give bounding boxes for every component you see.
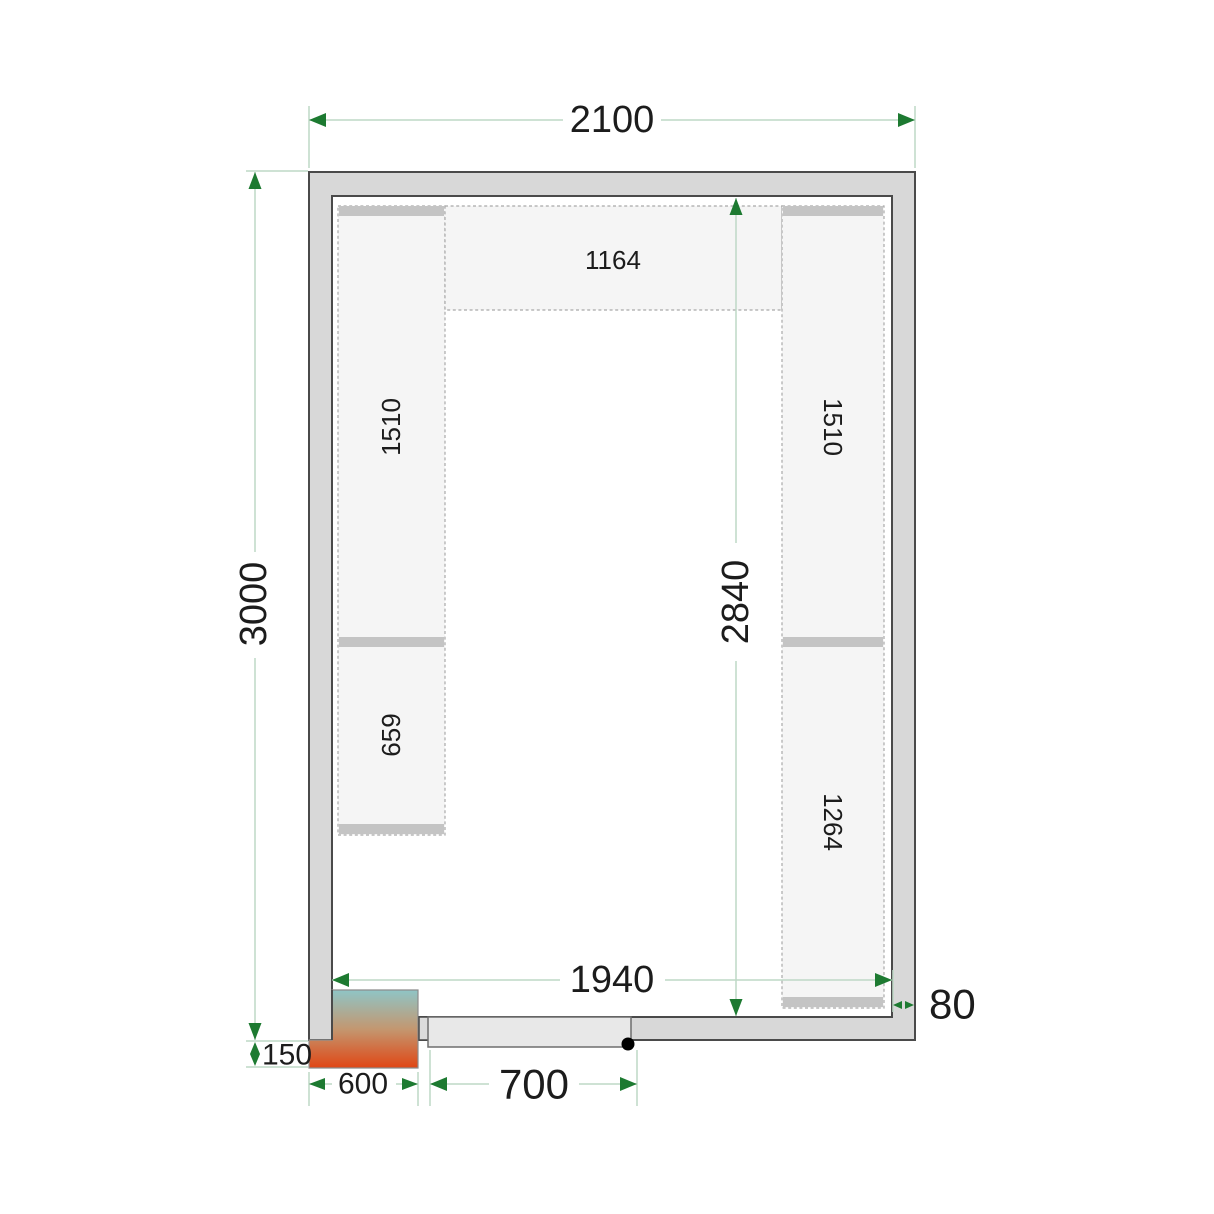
shelf-right <box>782 206 884 1008</box>
dim-door-width-label: 700 <box>499 1061 569 1108</box>
dim-600-arrow-right <box>402 1078 418 1090</box>
dim-unit-width-label: 600 <box>338 1068 388 1101</box>
dim-150-arrow-down <box>250 1054 260 1066</box>
shelf-right-lower-label: 1264 <box>818 793 848 851</box>
shelf-right-divider-bar <box>783 637 883 647</box>
dim-outer-height-label: 3000 <box>233 562 275 647</box>
dim-600-arrow-left <box>309 1078 325 1090</box>
shelf-left-lower-label: 659 <box>376 713 406 756</box>
shelf-left-divider-bar <box>339 637 444 647</box>
dim-inner-width-label: 1940 <box>570 959 655 1001</box>
shelf-left-top-bar <box>339 206 444 216</box>
dim-150-arrow-up <box>250 1042 260 1054</box>
dim-outer-width-label: 2100 <box>570 99 655 141</box>
shelf-top-label: 1164 <box>585 245 641 275</box>
shelf-left-upper-label: 1510 <box>376 398 406 456</box>
dim-unit-offset-label: 150 <box>262 1039 312 1072</box>
plan-canvas: 1164 1510 659 1510 1264 2100 3000 2840 1… <box>0 0 1214 1214</box>
dim-2100-arrow-right <box>898 113 915 127</box>
shelf-right-top-bar <box>783 206 883 216</box>
shelf-left-bottom-bar <box>339 824 444 834</box>
dim-3000-arrow-top <box>249 172 262 189</box>
dim-700-arrow-right <box>620 1077 637 1091</box>
dim-inner-height-label: 2840 <box>715 560 757 645</box>
shelf-right-upper-label: 1510 <box>818 398 848 456</box>
shelf-right-bottom-bar <box>783 997 883 1007</box>
door-hinge-dot <box>622 1038 635 1051</box>
dim-2100-arrow-left <box>309 113 326 127</box>
dim-3000-arrow-bottom <box>249 1023 262 1040</box>
door-leaf <box>428 1017 631 1047</box>
cold-room-plan-drawing: 1164 1510 659 1510 1264 2100 3000 2840 1… <box>0 0 1214 1214</box>
dim-wall-thickness-label: 80 <box>929 981 976 1028</box>
dim-700-arrow-left <box>430 1077 447 1091</box>
